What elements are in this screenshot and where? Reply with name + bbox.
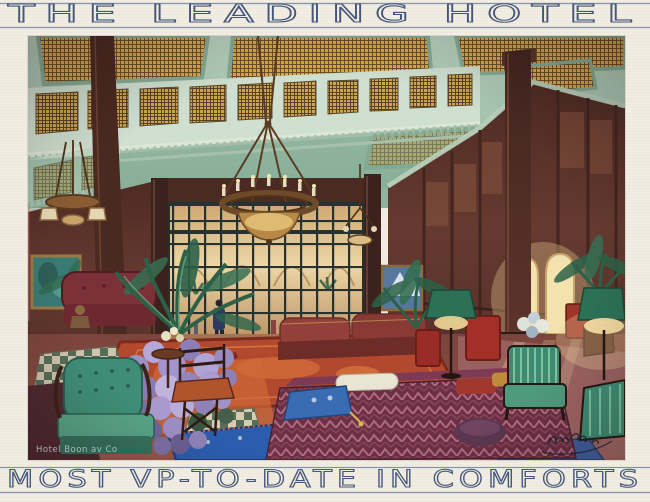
header-title: THE LEADING HOTEL — [6, 0, 642, 28]
postcard: { "card": { "background_color": "#f1ede3… — [0, 0, 650, 498]
vignette — [28, 36, 625, 460]
footer-title: MOST VP-TO-DATE IN COMFORTS — [7, 465, 643, 493]
header-band: THE LEADING HOTEL — [0, 0, 650, 32]
lobby-illustration: Hotel Boon av Co — [28, 36, 625, 460]
caption-overlay: Hotel Boon av Co — [36, 445, 118, 455]
footer-band: MOST VP-TO-DATE IN COMFORTS — [0, 462, 650, 498]
